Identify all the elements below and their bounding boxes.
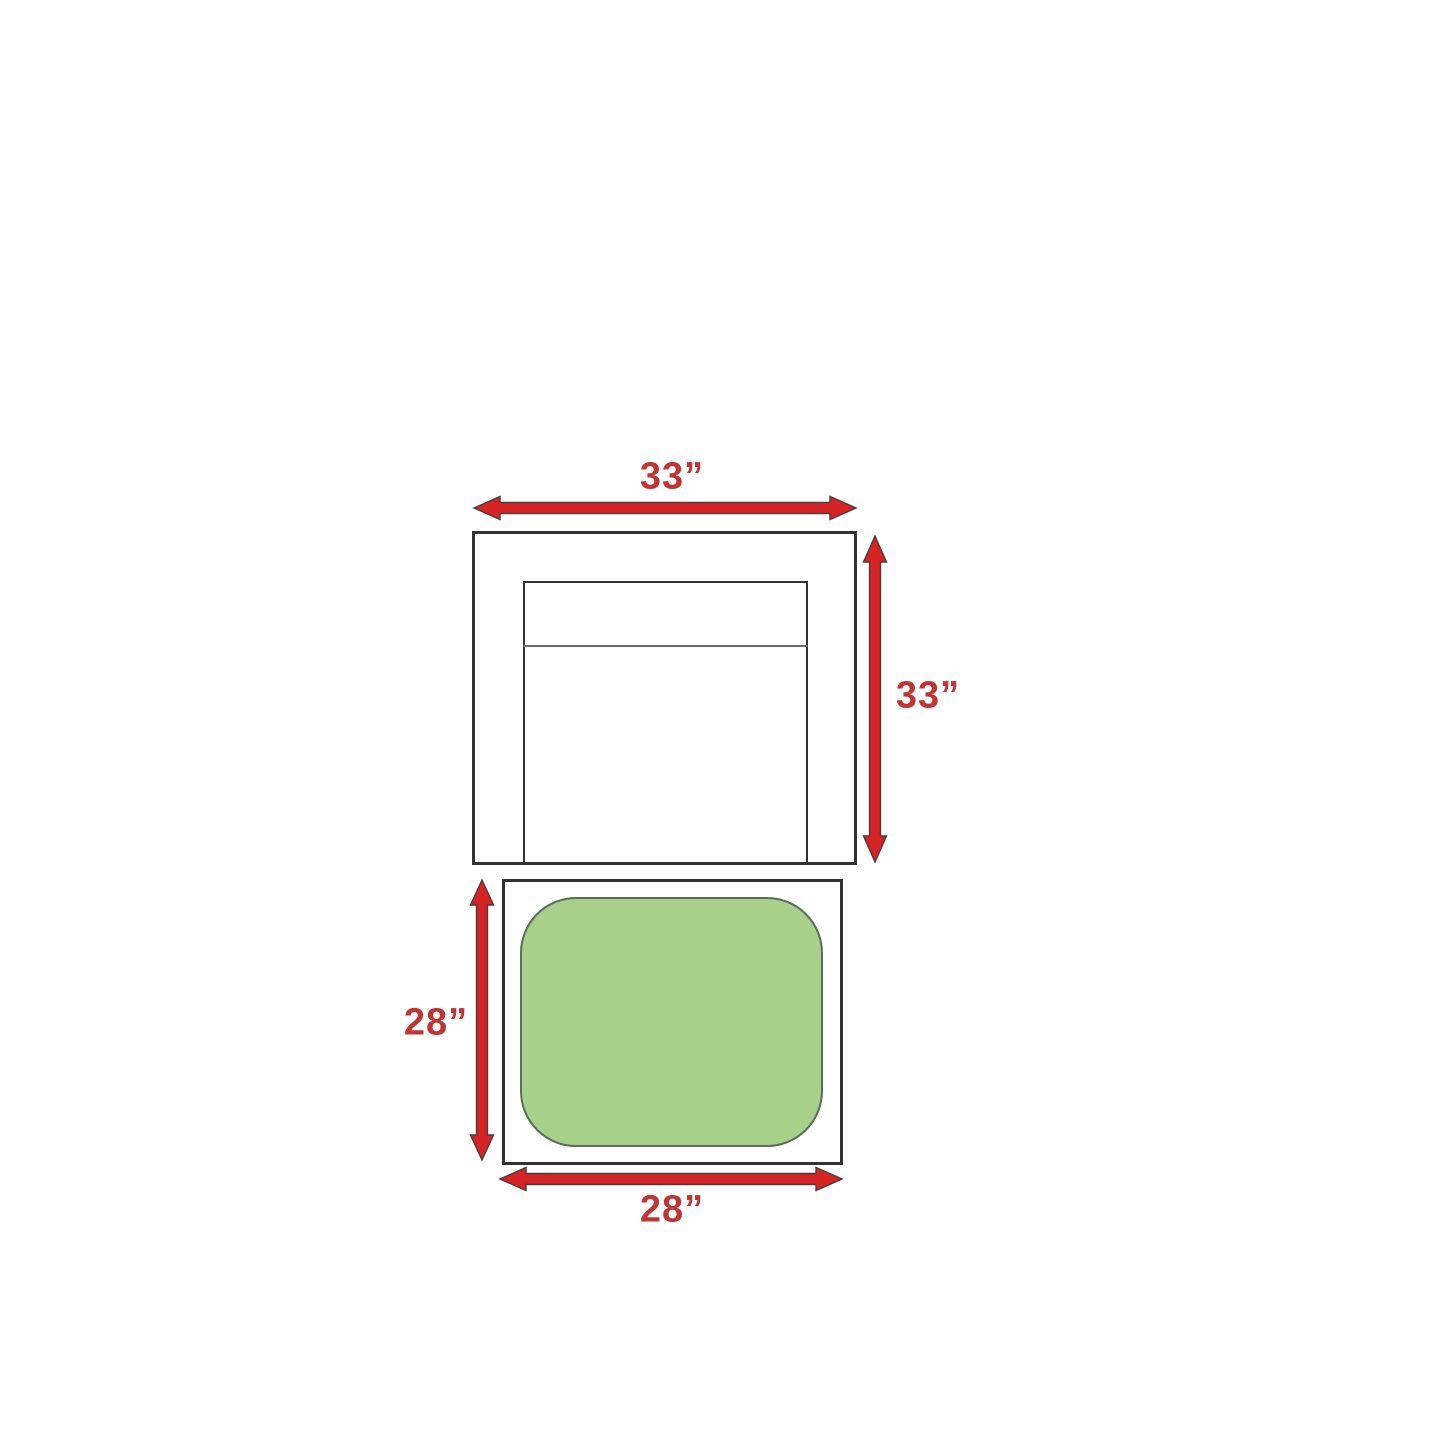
left-height-label: 28” [404,1002,468,1045]
left-height-double-arrow-icon [468,878,496,1162]
bottom-width-label: 28” [640,1189,704,1232]
right-height-label: 33” [896,675,960,718]
top-width-label: 33” [640,456,704,499]
top-width-double-arrow-icon [472,494,858,522]
armchair-backrest-line [523,645,808,647]
furniture-dimension-diagram: 33” 33” 28” 28” [0,0,1445,1445]
ottoman-cushion [520,897,823,1147]
armchair-seat-outline [523,581,808,865]
right-height-double-arrow-icon [861,534,889,864]
